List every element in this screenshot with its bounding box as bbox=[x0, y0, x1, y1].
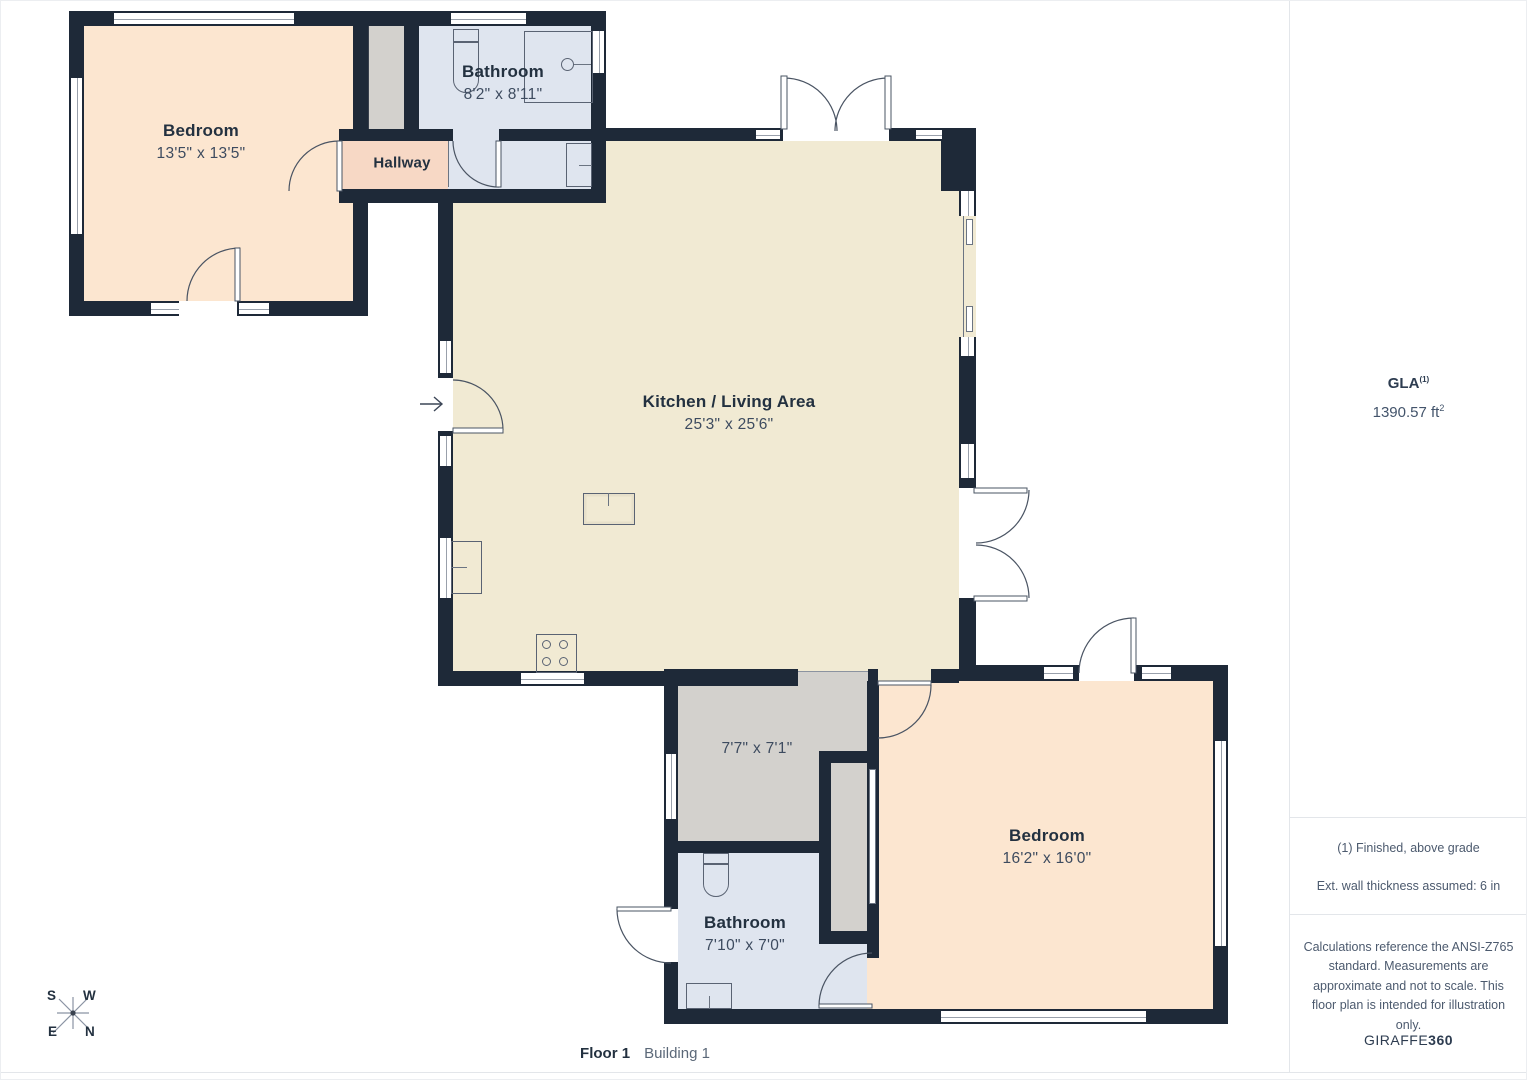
door-arc bbox=[976, 545, 1029, 598]
burner bbox=[559, 657, 568, 666]
page-bottom-border bbox=[1, 1072, 1527, 1073]
room-dims: 13'5" x 13'5" bbox=[157, 145, 246, 163]
label-bathroom-bottom: Bathroom 7'10" x 7'0" bbox=[704, 913, 786, 955]
burner bbox=[542, 640, 551, 649]
wall bbox=[819, 751, 831, 944]
burner bbox=[542, 657, 551, 666]
brand-bold: 360 bbox=[1428, 1032, 1453, 1048]
room-name: Hallway bbox=[373, 155, 430, 172]
sidebar-divider-vertical bbox=[1289, 1, 1290, 1072]
window bbox=[69, 78, 84, 234]
label-bedroom-top: Bedroom 13'5" x 13'5" bbox=[157, 121, 246, 163]
door-arc bbox=[617, 909, 671, 963]
window bbox=[114, 11, 294, 26]
sidebar-divider bbox=[1289, 914, 1527, 915]
gla-label: GLA bbox=[1388, 375, 1420, 392]
window bbox=[756, 128, 780, 141]
label-bedroom-bottom: Bedroom 16'2" x 16'0" bbox=[1003, 826, 1092, 868]
window bbox=[959, 337, 976, 356]
compass-n: N bbox=[85, 1024, 95, 1039]
compass-e: E bbox=[48, 1024, 57, 1039]
door-opening bbox=[867, 958, 879, 1009]
door-leaf bbox=[617, 907, 671, 911]
wall bbox=[867, 681, 879, 738]
door-leaf bbox=[974, 596, 1027, 601]
gla-value-text: 1390.57 ft bbox=[1373, 404, 1440, 421]
door-opening bbox=[959, 488, 976, 598]
window bbox=[1213, 741, 1228, 946]
door-opening bbox=[664, 909, 678, 962]
stove bbox=[536, 634, 577, 673]
room-kitchen-main bbox=[453, 201, 959, 673]
floorplan-page: Bedroom 13'5" x 13'5" Bathroom 8'2" x 8'… bbox=[0, 0, 1527, 1080]
room-utility-lower bbox=[678, 751, 819, 841]
wall bbox=[664, 841, 831, 853]
window bbox=[451, 11, 526, 26]
door-leaf bbox=[781, 76, 787, 129]
window bbox=[239, 301, 269, 316]
window bbox=[591, 31, 606, 73]
sliding-door bbox=[869, 769, 876, 904]
wall bbox=[664, 669, 798, 683]
room-bathroom-bottom-ext bbox=[819, 944, 867, 1009]
door-opening bbox=[438, 378, 453, 431]
gla-heading: GLA(1) bbox=[1290, 375, 1527, 392]
building-label: Building 1 bbox=[644, 1045, 710, 1062]
room-dims: 7'7" x 7'1" bbox=[721, 740, 792, 758]
gla-value: 1390.57 ft2 bbox=[1290, 403, 1527, 421]
window bbox=[916, 128, 942, 141]
window bbox=[438, 341, 453, 373]
label-utility: 7'7" x 7'1" bbox=[721, 740, 792, 758]
window bbox=[1142, 665, 1171, 681]
sink-line bbox=[579, 165, 592, 166]
door-arc bbox=[784, 78, 837, 131]
door-opening bbox=[453, 129, 499, 141]
wall bbox=[353, 11, 368, 141]
floor-caption: Floor 1Building 1 bbox=[1, 1045, 1289, 1062]
window bbox=[959, 191, 976, 216]
sidebar-disclaimer: Calculations reference the ANSI-Z765 sta… bbox=[1303, 938, 1514, 1035]
room-dims: 16'2" x 16'0" bbox=[1003, 850, 1092, 868]
gla-value-superscript: 2 bbox=[1439, 403, 1444, 413]
door-opening bbox=[878, 669, 931, 683]
kitchen-sink-line bbox=[451, 567, 467, 568]
label-bathroom-top: Bathroom 8'2" x 8'11" bbox=[462, 62, 544, 104]
closet-bottom bbox=[831, 763, 867, 931]
room-name: Bathroom bbox=[704, 913, 786, 933]
compass-s: S bbox=[47, 988, 56, 1003]
sink-line bbox=[709, 996, 710, 1009]
room-bedroom-top bbox=[84, 26, 353, 301]
room-kitchen-upper bbox=[606, 141, 959, 203]
window bbox=[521, 671, 584, 686]
door-arc bbox=[835, 78, 888, 131]
kitchen-island bbox=[583, 493, 635, 525]
window bbox=[664, 754, 678, 819]
room-name: Bedroom bbox=[1003, 826, 1092, 846]
window bbox=[151, 301, 179, 316]
door-opening bbox=[783, 128, 889, 141]
room-name: Kitchen / Living Area bbox=[643, 392, 816, 412]
brand-regular: GIRAFFE bbox=[1364, 1032, 1428, 1048]
wall bbox=[404, 26, 419, 129]
room-dims: 25'3" x 25'6" bbox=[643, 416, 816, 434]
door-arc bbox=[976, 490, 1029, 543]
room-name: Bathroom bbox=[462, 62, 544, 82]
shower-drain-icon bbox=[561, 58, 574, 71]
utility-opening bbox=[798, 671, 868, 686]
burner bbox=[559, 640, 568, 649]
door-leaf bbox=[885, 76, 891, 129]
glazing-panel bbox=[966, 306, 973, 332]
window bbox=[438, 436, 453, 466]
gla-superscript: (1) bbox=[1419, 375, 1429, 384]
sidebar-divider bbox=[1289, 817, 1527, 818]
sidebar-note-1: (1) Finished, above grade bbox=[1290, 841, 1527, 855]
closet-top bbox=[368, 26, 405, 129]
floor-label: Floor 1 bbox=[580, 1045, 630, 1062]
window bbox=[941, 1009, 1146, 1024]
wall bbox=[353, 189, 368, 316]
door-opening bbox=[1079, 665, 1134, 681]
room-name: Bedroom bbox=[157, 121, 246, 141]
label-hallway: Hallway bbox=[373, 155, 430, 172]
door-opening bbox=[179, 301, 237, 316]
room-dims: 8'2" x 8'11" bbox=[462, 86, 544, 104]
window bbox=[959, 444, 976, 478]
glazing-panel bbox=[966, 219, 973, 245]
brand-logo: GIRAFFE360 bbox=[1290, 1032, 1527, 1048]
door-leaf bbox=[974, 488, 1027, 493]
wall bbox=[339, 189, 606, 203]
toilet-bowl bbox=[703, 863, 729, 897]
shower-line bbox=[573, 64, 591, 65]
label-kitchen: Kitchen / Living Area 25'3" x 25'6" bbox=[643, 392, 816, 434]
glazing-line bbox=[963, 216, 964, 337]
jamb-line bbox=[448, 141, 449, 187]
island-line bbox=[608, 493, 609, 506]
window bbox=[1044, 665, 1073, 681]
compass-w: W bbox=[83, 988, 96, 1003]
room-dims: 7'10" x 7'0" bbox=[704, 937, 786, 955]
sidebar-note-2: Ext. wall thickness assumed: 6 in bbox=[1290, 879, 1527, 893]
